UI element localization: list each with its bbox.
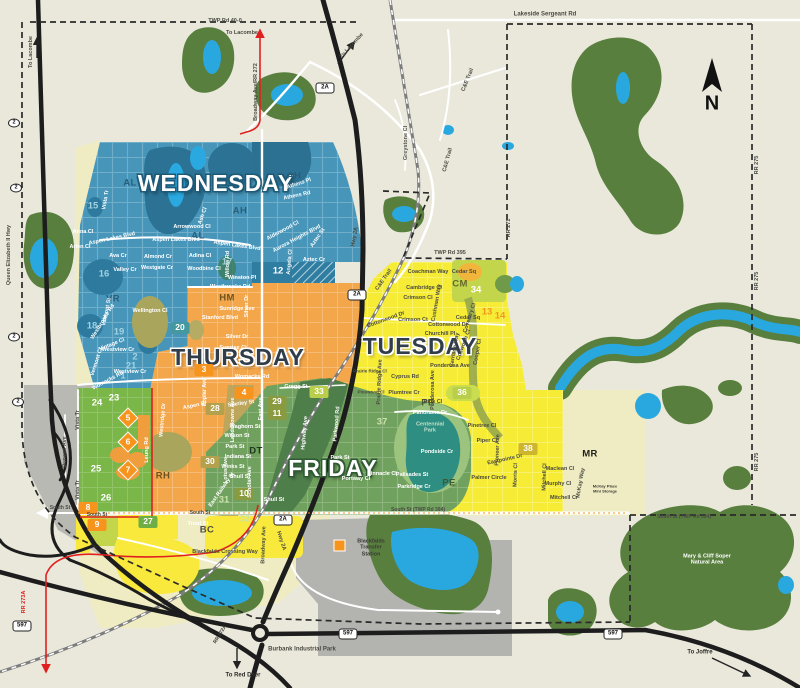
map-canvas xyxy=(0,0,800,688)
roundabout xyxy=(253,626,267,640)
collection-zone-map[interactable]: N WEDNESDAYTHURSDAYTUESDAYFRIDAYALALAHAH… xyxy=(0,0,800,688)
transfer-station-icon[interactable] xyxy=(334,540,345,551)
zone-12-hatched xyxy=(252,262,335,283)
